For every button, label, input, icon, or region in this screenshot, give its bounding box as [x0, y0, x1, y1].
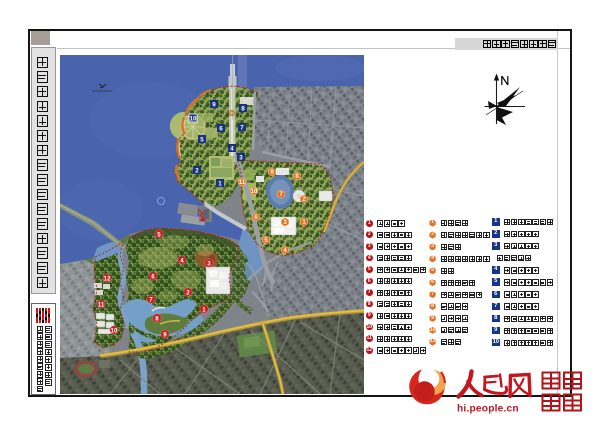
svg-text:hi.people.cn: hi.people.cn: [457, 404, 519, 415]
